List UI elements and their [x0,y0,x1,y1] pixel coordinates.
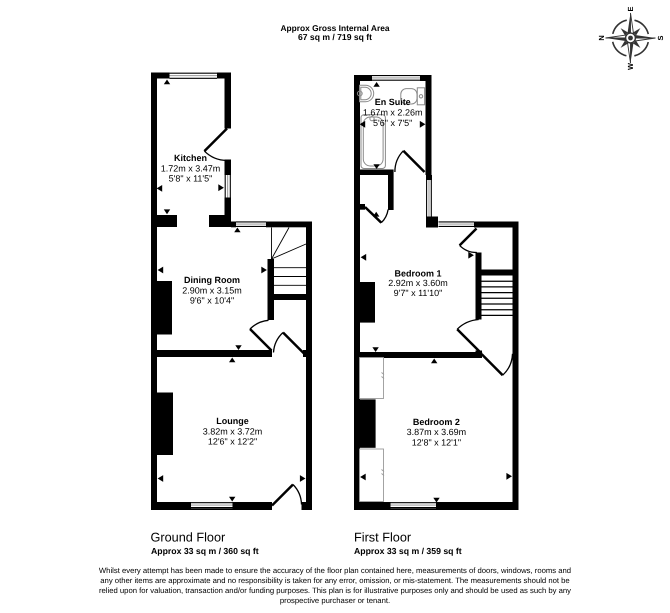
svg-text:Kitchen: Kitchen [174,153,207,163]
svg-text:3.82m x 3.72m: 3.82m x 3.72m [203,426,263,436]
svg-text:5'8" x 11'5": 5'8" x 11'5" [169,174,213,184]
svg-text:2.90m x 3.15m: 2.90m x 3.15m [182,285,242,295]
svg-text:1.72m x 3.47m: 1.72m x 3.47m [161,163,221,173]
svg-text:9'6" x 10'4": 9'6" x 10'4" [190,296,234,306]
svg-text:First Floor: First Floor [354,530,412,544]
svg-text:Dining Room: Dining Room [184,275,240,285]
svg-text:5'6" x 7'5": 5'6" x 7'5" [373,118,412,128]
svg-text:Approx 33 sq m / 359 sq ft: Approx 33 sq m / 359 sq ft [354,546,462,556]
svg-text:relied upon for valuation, tra: relied upon for valuation, transaction a… [99,586,571,595]
svg-text:2.92m x 3.60m: 2.92m x 3.60m [388,278,448,288]
svg-text:9'7" x 11'10": 9'7" x 11'10" [394,288,443,298]
svg-text:W: W [626,63,635,70]
svg-text:67 sq m / 719 sq ft: 67 sq m / 719 sq ft [298,32,372,42]
svg-text:S: S [656,35,665,40]
svg-text:Whilst every attempt has been: Whilst every attempt has been made to en… [99,566,571,575]
svg-text:Bedroom 2: Bedroom 2 [413,417,460,427]
svg-text:E: E [626,6,635,11]
svg-text:Bedroom 1: Bedroom 1 [394,269,441,279]
svg-text:3.87m x 3.69m: 3.87m x 3.69m [407,427,467,437]
svg-text:1.67m x 2.26m: 1.67m x 2.26m [363,108,423,118]
svg-text:N: N [597,35,606,40]
svg-text:12'6" x 12'2": 12'6" x 12'2" [208,436,257,446]
svg-text:Ground Floor: Ground Floor [151,530,227,544]
svg-text:Approx 33 sq m / 360 sq ft: Approx 33 sq m / 360 sq ft [151,546,259,556]
svg-text:any other items are approximat: any other items are approximate and no r… [100,576,569,585]
svg-text:prospective purchaser or tenan: prospective purchaser or tenant. [280,596,390,605]
svg-text:Lounge: Lounge [216,416,249,426]
svg-text:12'8" x 12'1": 12'8" x 12'1" [412,438,461,448]
svg-text:En Suite: En Suite [375,97,411,107]
